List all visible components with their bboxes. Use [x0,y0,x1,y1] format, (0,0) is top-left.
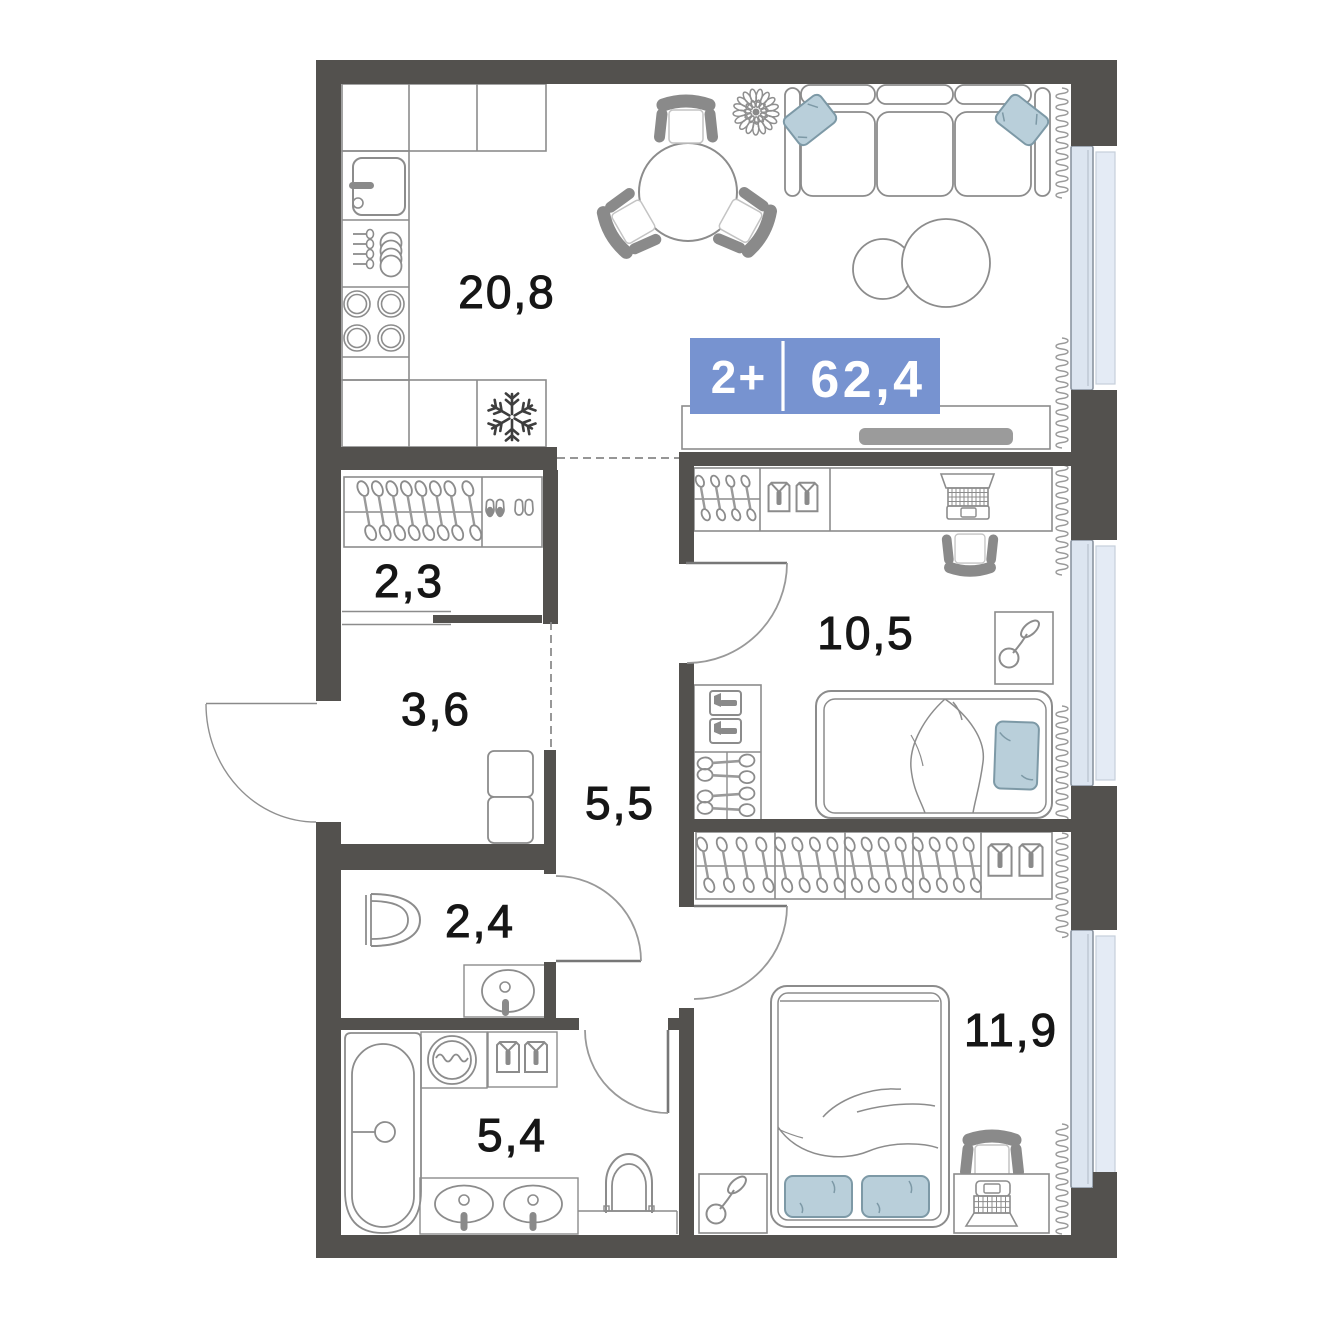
svg-text:5,4: 5,4 [477,1109,547,1161]
svg-text:2,4: 2,4 [445,895,515,947]
svg-text:62,4: 62,4 [810,351,925,409]
svg-text:5,5: 5,5 [585,777,655,829]
svg-text:20,8: 20,8 [458,266,556,318]
svg-text:2,3: 2,3 [374,555,444,607]
svg-text:2+: 2+ [711,351,767,403]
svg-text:3,6: 3,6 [401,683,471,735]
svg-text:11,9: 11,9 [964,1004,1058,1056]
svg-text:10,5: 10,5 [817,607,915,659]
